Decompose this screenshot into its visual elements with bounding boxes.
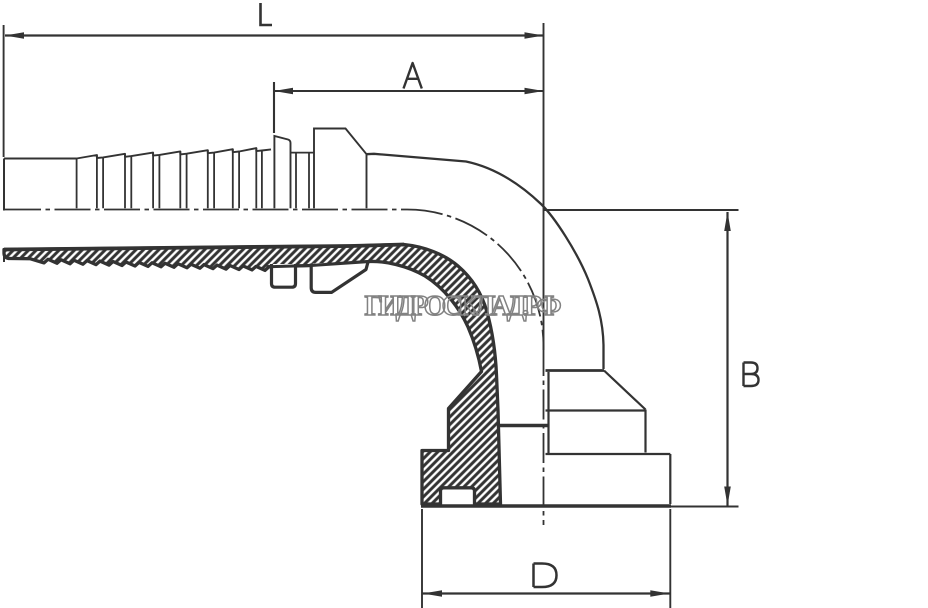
- svg-text:ГИДРОСКЛАД.РФ: ГИДРОСКЛАД.РФ: [365, 290, 562, 322]
